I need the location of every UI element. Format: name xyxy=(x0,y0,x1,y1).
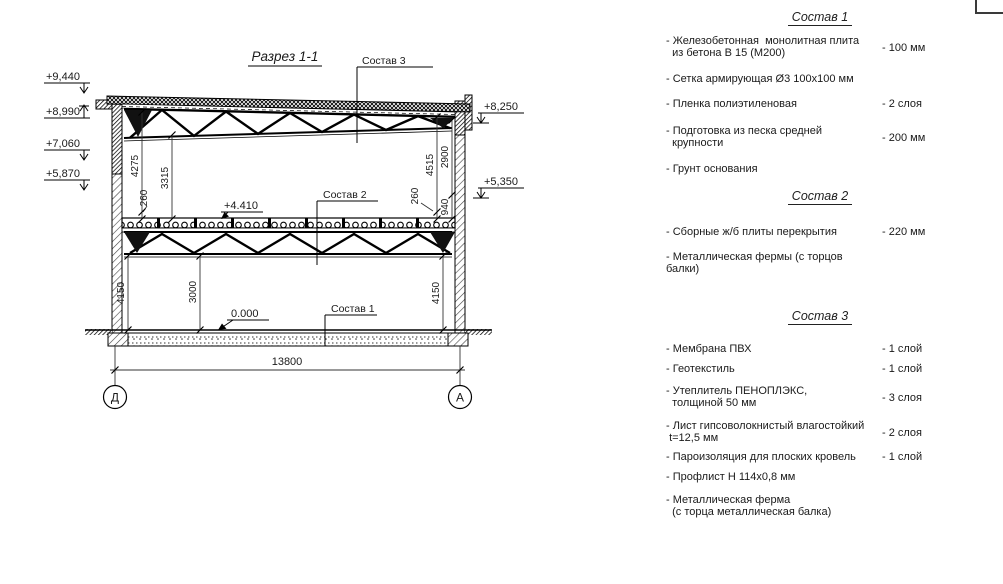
spec-item-name: - Лист гипсоволокнистый влагостойкий t=1… xyxy=(666,421,864,444)
elev-4410: +4.410 xyxy=(221,200,263,219)
spec-item-name: - Сборные ж/б плиты перекрытия xyxy=(666,227,837,239)
axis-bubbles: Д А xyxy=(104,386,472,409)
left-foundation xyxy=(108,333,128,346)
svg-text:+9,440: +9,440 xyxy=(46,71,80,83)
spec-item: - Пароизоляция для плоских кровель - 1 с… xyxy=(666,452,986,464)
spec-item: - Профлист Н 114х0,8 мм xyxy=(666,472,986,484)
dim-ul-260: 260 xyxy=(139,189,150,206)
elev-5870: +5,870 xyxy=(44,168,90,190)
spec-item-value: - 2 слоя xyxy=(882,99,922,111)
right-roof-edge xyxy=(465,95,472,130)
dim-ur-940: 940 xyxy=(440,198,451,215)
spec-item-name: - Утеплитель ПЕНОПЛЭКС, толщиной 50 мм xyxy=(666,386,807,409)
dim-lr-4150: 4150 xyxy=(431,281,442,304)
right-wall xyxy=(455,101,465,333)
left-wall-top xyxy=(112,104,122,174)
spec-item: - Подготовка из песка средней крупности … xyxy=(666,126,986,149)
spec-item: - Сборные ж/б плиты перекрытия - 220 мм xyxy=(666,227,986,239)
page: 4275 3315 260 4515 2900 940 260 4150 300… xyxy=(0,0,1003,584)
spec-item-name: - Пароизоляция для плоских кровель xyxy=(666,452,856,464)
building-section xyxy=(85,95,492,346)
elev-8250: +8,250 xyxy=(473,101,524,123)
spec-item: - Металлическая фермы (с торцов балки) xyxy=(666,252,986,275)
spec-item: - Лист гипсоволокнистый влагостойкий t=1… xyxy=(666,421,986,444)
spec-item-name: - Пленка полиэтиленовая xyxy=(666,99,797,111)
section-drawing: 4275 3315 260 4515 2900 940 260 4150 300… xyxy=(0,0,660,440)
dim-ur-4515: 4515 xyxy=(425,153,436,176)
drawing-title: Разрез 1-1 xyxy=(252,49,319,64)
spec-item-name: - Геотекстиль xyxy=(666,364,735,376)
spec-item: - Пленка полиэтиленовая - 2 слоя xyxy=(666,99,986,111)
ground-floor xyxy=(85,329,492,346)
spec-item: - Грунт основания xyxy=(666,164,986,176)
floor-truss xyxy=(124,232,455,257)
spec-item-name: - Грунт основания xyxy=(666,164,758,176)
spec-item-name: - Мембрана ПВХ xyxy=(666,344,751,356)
spec-item: - Металлическая ферма (с торца металличе… xyxy=(666,495,986,518)
dim-width-13800: 13800 xyxy=(272,356,303,368)
svg-text:Состав 2: Состав 2 xyxy=(323,189,367,201)
spec-item-name: - Железобетонная монолитная плита из бет… xyxy=(666,36,859,59)
svg-text:+5,870: +5,870 xyxy=(46,168,80,180)
spec-item-value: - 200 мм xyxy=(882,133,925,145)
spec-item-name: - Металлическая ферма (с торца металличе… xyxy=(666,495,831,518)
spec-item-name: - Профлист Н 114х0,8 мм xyxy=(666,472,795,484)
specs-panel: Состав 1 - Железобетонная монолитная пли… xyxy=(660,0,990,584)
elev-7060: +7,060 xyxy=(44,138,90,160)
spec-item-value: - 2 слоя xyxy=(882,428,922,440)
svg-text:+4.410: +4.410 xyxy=(224,200,258,212)
dim-ll-4150: 4150 xyxy=(116,281,127,304)
spec-item-value: - 220 мм xyxy=(882,227,925,239)
elev-9440: +9,440 xyxy=(44,71,90,93)
elev-0000: 0.000 xyxy=(218,308,269,330)
spec-heading-2: Состав 2 xyxy=(660,187,980,205)
axis-left-label: Д xyxy=(111,391,119,405)
spec-item: - Мембрана ПВХ - 1 слой xyxy=(666,344,986,356)
right-foundation xyxy=(448,333,468,346)
dim-ul-3315: 3315 xyxy=(160,166,171,189)
svg-text:+8,250: +8,250 xyxy=(484,101,518,113)
spec-item-name: - Сетка армирующая Ø3 100х100 мм xyxy=(666,74,854,86)
elev-8990: +8,990 xyxy=(44,105,90,118)
svg-text:Состав 3: Состав 3 xyxy=(362,55,406,67)
spec-heading-3: Состав 3 xyxy=(660,307,980,325)
callouts: Разрез 1-1 Состав 3 Состав 2 Состав 1 xyxy=(248,49,433,346)
spec-heading-1: Состав 1 xyxy=(660,8,980,26)
spec-item: - Утеплитель ПЕНОПЛЭКС, толщиной 50 мм -… xyxy=(666,386,986,409)
spec-item: - Геотекстиль - 1 слой xyxy=(666,364,986,376)
svg-text:+5,350: +5,350 xyxy=(484,176,518,188)
spec-item-value: - 3 слоя xyxy=(882,393,922,405)
svg-text:+7,060: +7,060 xyxy=(46,138,80,150)
spec-item-name: - Подготовка из песка средней крупности xyxy=(666,126,822,149)
middle-floor xyxy=(122,218,455,232)
axis-right-label: А xyxy=(456,391,464,405)
spec-item-value: - 100 мм xyxy=(882,43,925,55)
dim-ll-3000: 3000 xyxy=(188,280,199,303)
spec-item-name: - Металлическая фермы (с торцов балки) xyxy=(666,252,874,275)
spec-item: - Сетка армирующая Ø3 100х100 мм xyxy=(666,74,986,86)
dim-ur-2900: 2900 xyxy=(440,145,451,168)
spec-item-value: - 1 слой xyxy=(882,364,922,376)
dim-ul-4275: 4275 xyxy=(130,154,141,177)
elev-5350: +5,350 xyxy=(473,176,524,198)
svg-text:0.000: 0.000 xyxy=(231,308,259,320)
spec-item-value: - 1 слой xyxy=(882,344,922,356)
svg-text:+8,990: +8,990 xyxy=(46,106,80,118)
spec-item: - Железобетонная монолитная плита из бет… xyxy=(666,36,986,59)
spec-item-value: - 1 слой xyxy=(882,452,922,464)
svg-text:Состав 1: Состав 1 xyxy=(331,303,375,315)
dim-ur-260: 260 xyxy=(410,187,421,204)
